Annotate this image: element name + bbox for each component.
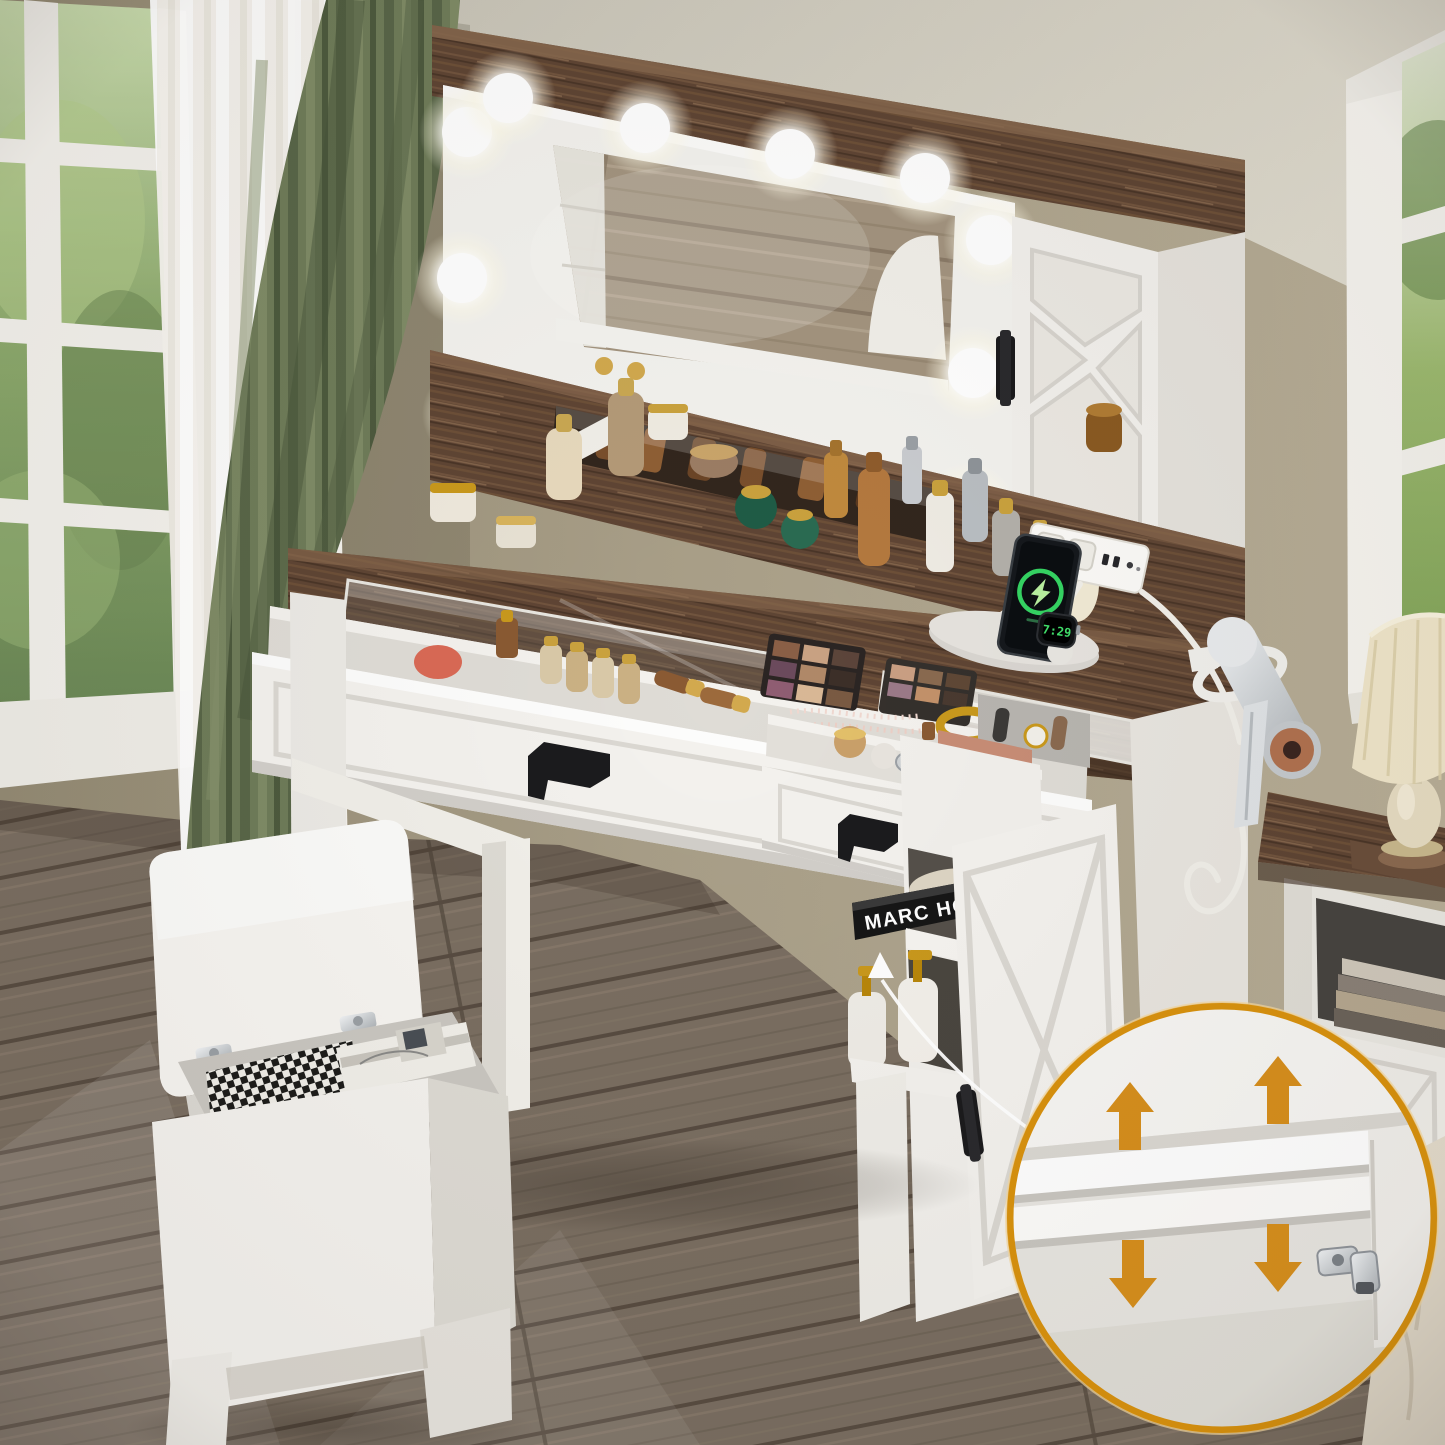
product-photo: 7:29 (0, 0, 1445, 1445)
vignette (0, 0, 1445, 1445)
